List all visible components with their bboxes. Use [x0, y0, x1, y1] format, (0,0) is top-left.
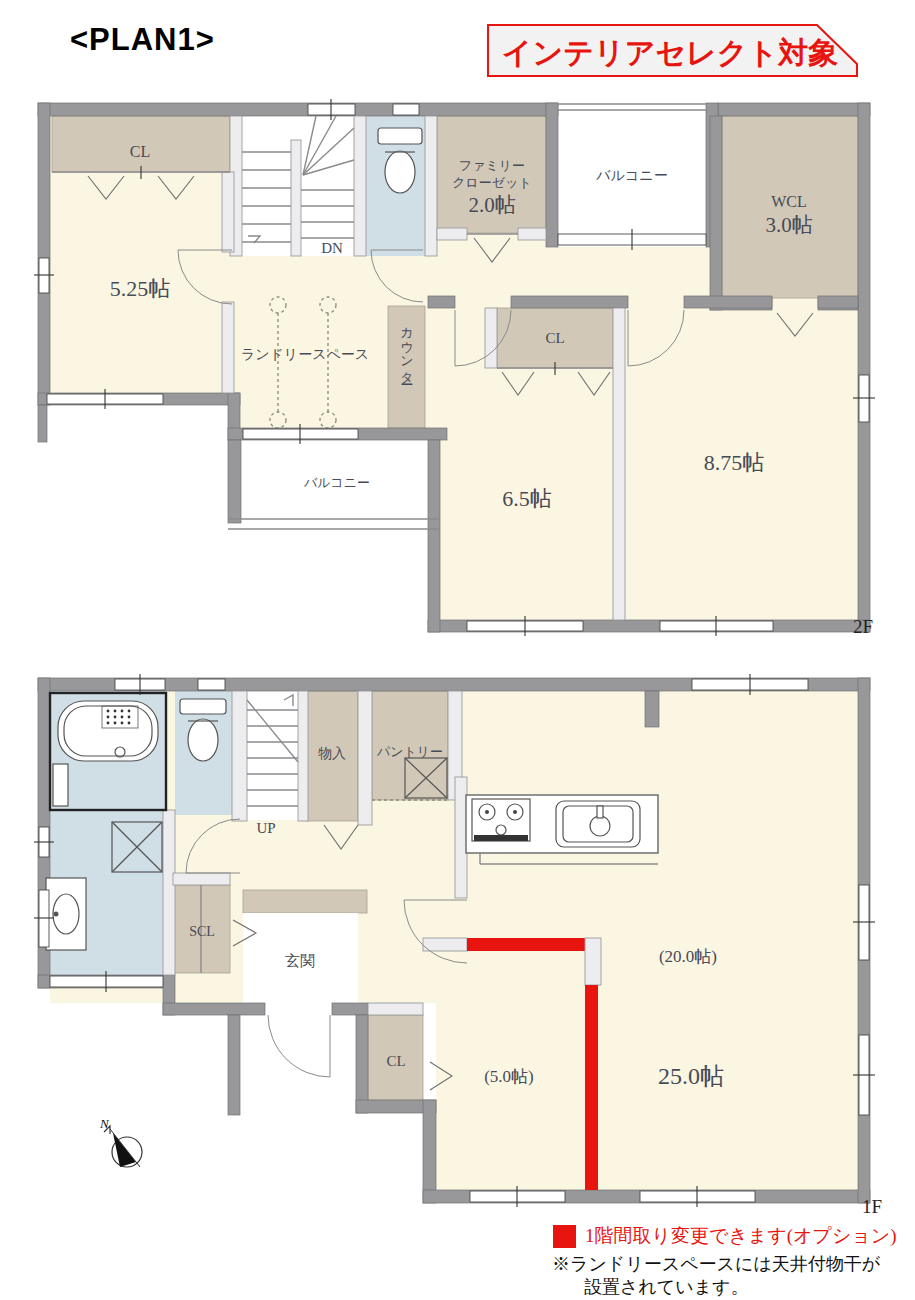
label-dn: DN: [321, 240, 343, 256]
label-wcl-size: 3.0帖: [765, 213, 812, 237]
label-pantry: パントリー: [376, 744, 443, 759]
footnote-line-1: ※ランドリースペースには天井付物干が: [552, 1252, 880, 1276]
label-bedroom-65: 6.5帖: [502, 486, 552, 511]
floor-1-tag: 1F: [862, 1196, 882, 1217]
red-wall-horizontal: [467, 938, 585, 951]
label-family-closet-2: クローゼット: [452, 175, 532, 190]
compass-n-label: N: [99, 1116, 110, 1131]
label-storage: 物入: [318, 746, 346, 761]
kitchen-counter: [466, 795, 658, 864]
footnote-line-2: 設置されています。: [584, 1275, 749, 1299]
floor-1-plan: 物入 パントリー UP SCL 玄関 CL (20.0帖) (5.0帖) 25.…: [34, 674, 882, 1217]
floorplan-canvas: CL DN ファミリー クローゼット 2.0帖 バルコニー WCL 3.0帖 5…: [0, 0, 915, 1300]
label-scl: SCL: [189, 924, 215, 939]
label-balcony-bottom: バルコニー: [303, 475, 370, 490]
label-bedroom-525: 5.25帖: [110, 276, 171, 301]
bathtub-icon: [50, 693, 166, 810]
legend-row: 1階間取り変更できます(オプション): [553, 1223, 897, 1249]
floorplan-page: <PLAN1> インテリアセレクト対象: [0, 0, 915, 1300]
label-genkan: 玄関: [285, 953, 315, 969]
legend-red-swatch: [553, 1225, 576, 1248]
compass-icon: N: [99, 1116, 142, 1167]
label-room-partial: (5.0帖): [484, 1067, 534, 1086]
label-bedroom-875: 8.75帖: [704, 450, 765, 475]
label-cl-top: CL: [130, 143, 150, 160]
vanity-icon: [46, 878, 86, 950]
floor-2-plan: CL DN ファミリー クローゼット 2.0帖 バルコニー WCL 3.0帖 5…: [34, 99, 875, 637]
label-family-closet-size: 2.0帖: [468, 193, 515, 217]
entrance-step: [243, 890, 367, 913]
label-cl-mid: CL: [545, 330, 564, 346]
label-counter: カウンター: [400, 318, 415, 385]
label-ldk-total: 25.0帖: [658, 1063, 724, 1089]
label-wcl: WCL: [771, 193, 807, 210]
label-family-closet-1: ファミリー: [459, 158, 525, 173]
label-cl-1f: CL: [386, 1053, 405, 1069]
label-laundry: ランドリースペース: [241, 347, 369, 362]
red-wall-vertical: [585, 985, 598, 1190]
legend-label: 1階間取り変更できます(オプション): [585, 1223, 897, 1249]
label-up: UP: [256, 820, 275, 836]
label-balcony-top: バルコニー: [595, 168, 667, 183]
label-ldk-partial: (20.0帖): [659, 947, 717, 966]
entrance-porch: [240, 1015, 356, 1100]
floor-2-tag: 2F: [853, 616, 873, 637]
